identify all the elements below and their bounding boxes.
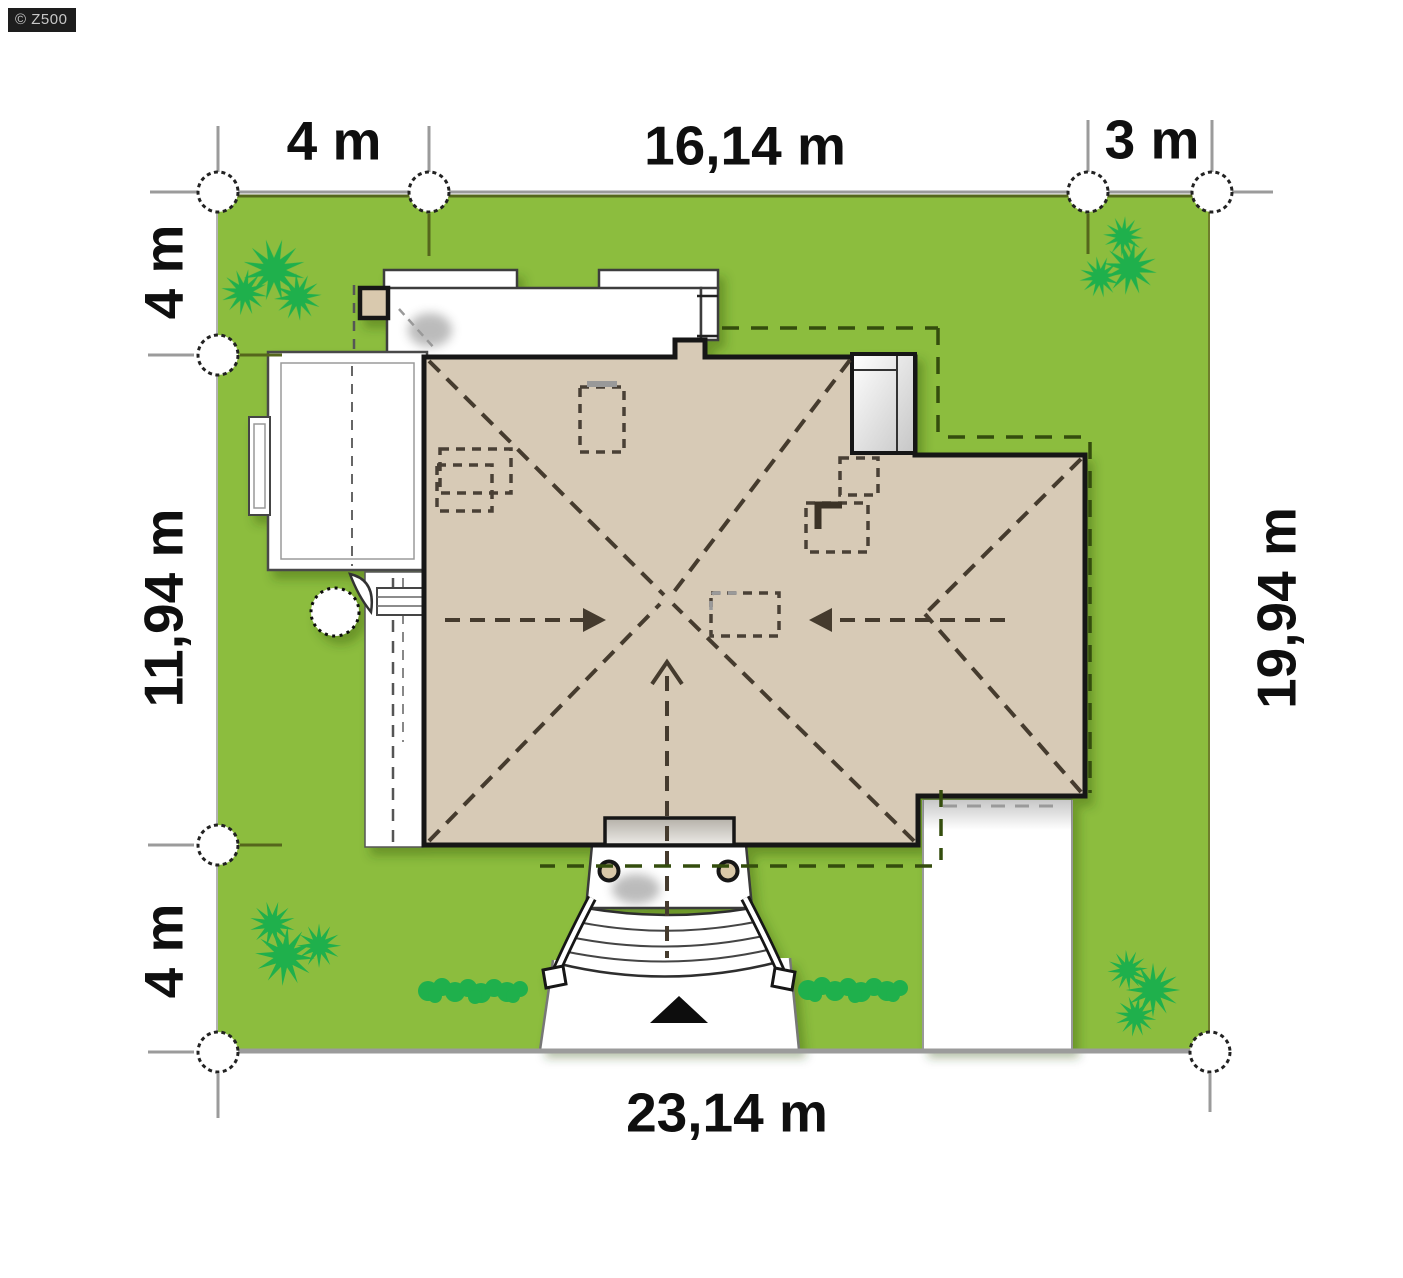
entrance-steps xyxy=(560,908,778,977)
roof-tab-right xyxy=(599,270,718,289)
dim-left-middle: 11,94 m xyxy=(137,509,192,708)
dim-right: 19,94 m xyxy=(1250,507,1305,709)
dim-bottom: 23,14 m xyxy=(626,1086,828,1141)
side-steps xyxy=(377,588,425,615)
walkway xyxy=(923,798,1072,1050)
site-plan-page: 4 m 16,14 m 3 m 4 m 11,94 m 4 m 19,94 m … xyxy=(0,0,1403,1278)
roof-tab-left xyxy=(384,270,517,289)
tree-circle-icon xyxy=(311,588,359,636)
dim-top-middle: 16,14 m xyxy=(644,119,846,174)
watermark-badge: © Z500 xyxy=(8,8,76,32)
roof-window-sill xyxy=(587,381,617,387)
dim-left-top: 4 m xyxy=(137,225,192,320)
chimney-block xyxy=(852,354,915,453)
dim-left-bottom: 4 m xyxy=(137,904,192,999)
side-window-bay xyxy=(249,417,270,515)
entrance-canopy xyxy=(605,818,734,845)
dim-top-right: 3 m xyxy=(1105,113,1200,168)
dim-top-left: 4 m xyxy=(287,114,382,169)
small-chimney xyxy=(360,288,388,318)
garage xyxy=(268,352,427,570)
